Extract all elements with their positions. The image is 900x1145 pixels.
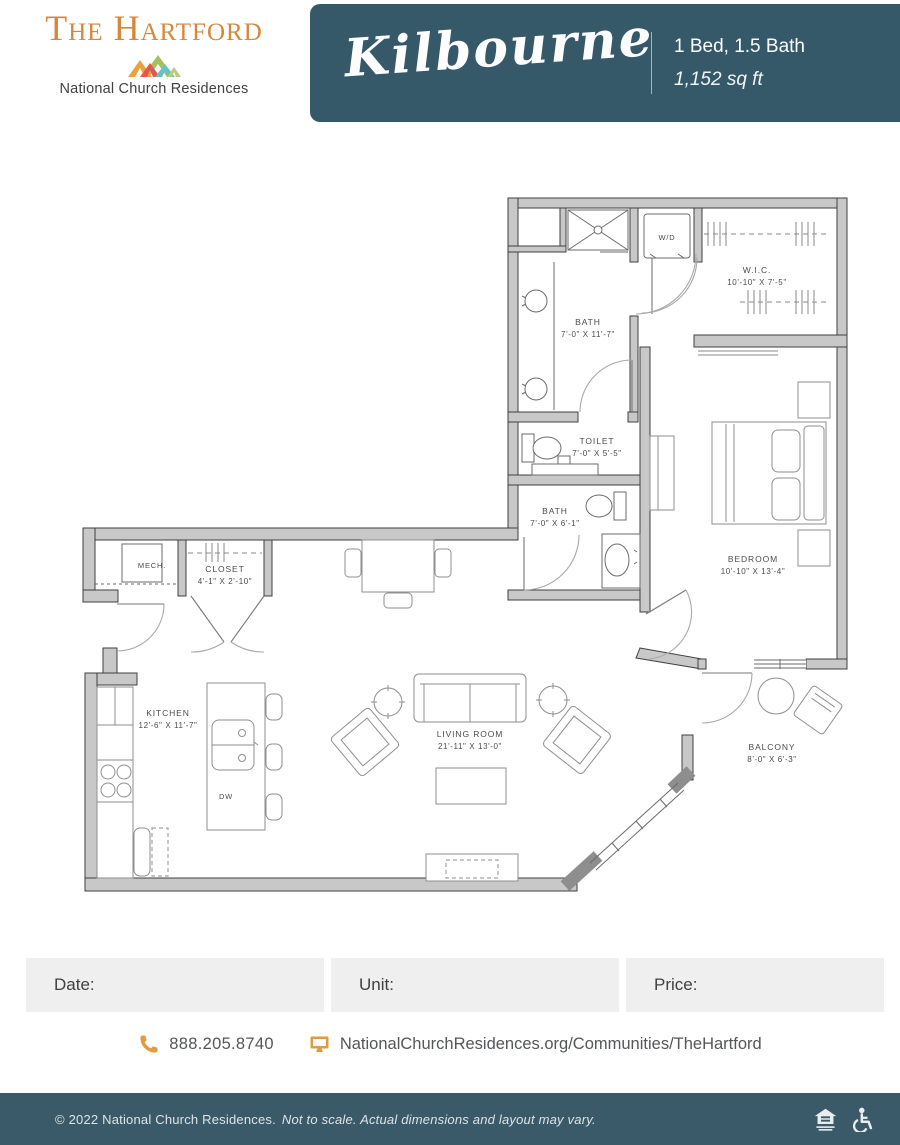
room-dims-closet: 4'-1" X 2'-10" [198, 577, 253, 586]
date-field: Date: [26, 958, 324, 1012]
tv-stand [426, 854, 518, 881]
price-field: Price: [626, 958, 884, 1012]
floor-plan: W.I.C. 10'-10" X 7'-5" BATH 7'-0" X 11'-… [0, 125, 900, 958]
monitor-icon [308, 1033, 331, 1055]
ncr-chevrons-icon [122, 52, 186, 80]
brand-name: National Church Residences [18, 81, 290, 97]
room-label-mech: MECH. [138, 561, 166, 570]
room-label-closet: CLOSET [205, 564, 244, 574]
nightstand [798, 530, 830, 566]
unit-label: Unit: [359, 975, 394, 995]
island-stool [266, 794, 282, 820]
hall-door [636, 254, 696, 314]
bath2-vanity [602, 534, 640, 588]
bath2-toilet [586, 492, 626, 520]
room-dims-wic: 10'-10" X 7'-5" [727, 278, 787, 287]
armchair [330, 707, 400, 777]
kitchen-counter [97, 687, 133, 878]
room-dims-kitchen: 12'-6" X 11'-7" [139, 721, 198, 730]
room-dims-living: 21'-11" X 13'-0" [438, 742, 502, 751]
info-fields: Date: Unit: Price: [26, 958, 886, 1012]
room-dims-bath1: 7'-0" X 11'-7" [561, 330, 615, 339]
disclaimer-text: Not to scale. Actual dimensions and layo… [282, 1112, 596, 1127]
phone-icon [138, 1033, 160, 1055]
side-table [371, 685, 405, 719]
banner-divider [651, 32, 652, 94]
contact-row: 888.205.8740 NationalChurchResidences.or… [0, 1033, 900, 1055]
room-dims-bedroom: 10'-10" X 13'-4" [721, 567, 786, 576]
island-stool [266, 694, 282, 720]
coffee-table [436, 768, 506, 804]
label-washer-dryer: W/D [659, 233, 676, 242]
entry-door [117, 604, 164, 651]
phone-number: 888.205.8740 [169, 1035, 274, 1054]
plan-specs: 1 Bed, 1.5 Bath 1,152 sq ft [674, 30, 805, 97]
brand-logo: The Hartford National Church Residences [18, 10, 290, 97]
nightstand [798, 382, 830, 418]
date-label: Date: [54, 975, 95, 995]
wheelchair-icon [851, 1107, 876, 1132]
room-dims-bath2: 7'-0" X 6'-1" [530, 519, 579, 528]
furniture [97, 382, 843, 881]
room-label-bath1: BATH [575, 317, 601, 327]
kitchen-cart [134, 828, 168, 876]
bath-door [524, 535, 579, 590]
room-label-toilet: TOILET [579, 436, 614, 446]
island-stool [266, 744, 282, 770]
toilet-fixture [522, 434, 561, 462]
room-label-bath2: BATH [542, 506, 568, 516]
bedroom-door [646, 590, 692, 659]
room-label-living: LIVING ROOM [437, 729, 504, 739]
room-label-bedroom: BEDROOM [728, 554, 778, 564]
dresser [650, 436, 674, 510]
balcony-chair [793, 685, 843, 735]
balcony-table [758, 678, 794, 714]
price-label: Price: [654, 975, 697, 995]
kitchen-island [207, 683, 265, 830]
room-label-balcony: BALCONY [749, 742, 796, 752]
plan-name: Kilbourne [342, 8, 646, 90]
side-table [536, 683, 570, 717]
toilet-room-door [580, 360, 632, 412]
bed-bath-count: 1 Bed, 1.5 Bath [674, 30, 805, 63]
website-url: NationalChurchResidences.org/Communities… [340, 1035, 762, 1054]
room-dims-toilet: 7'-0" X 5'-5" [572, 449, 621, 458]
bed [712, 422, 826, 524]
label-dishwasher: DW [219, 792, 233, 801]
dining-table [345, 540, 451, 608]
footer-bar: © 2022 National Church Residences. Not t… [0, 1093, 900, 1145]
balcony-door [702, 673, 752, 723]
room-dims-balcony: 8'-0" X 6'-3" [747, 755, 796, 764]
wd-door [642, 258, 697, 313]
room-label-wic: W.I.C. [743, 265, 772, 275]
armchair [542, 705, 612, 775]
bath-sinks [522, 262, 554, 410]
property-name: The Hartford [18, 10, 290, 48]
equal-housing-icon [813, 1107, 838, 1132]
footer-icons [813, 1107, 876, 1132]
room-label-kitchen: KITCHEN [146, 708, 190, 718]
toilet-vanity [532, 456, 598, 475]
plan-banner: Kilbourne 1 Bed, 1.5 Bath 1,152 sq ft [310, 4, 900, 122]
square-footage: 1,152 sq ft [674, 63, 805, 96]
shower [568, 210, 628, 252]
closet-double-doors [191, 596, 264, 652]
closet-rod [188, 543, 262, 562]
sofa [414, 674, 526, 722]
unit-field: Unit: [331, 958, 619, 1012]
copyright-text: © 2022 National Church Residences. [55, 1112, 276, 1127]
